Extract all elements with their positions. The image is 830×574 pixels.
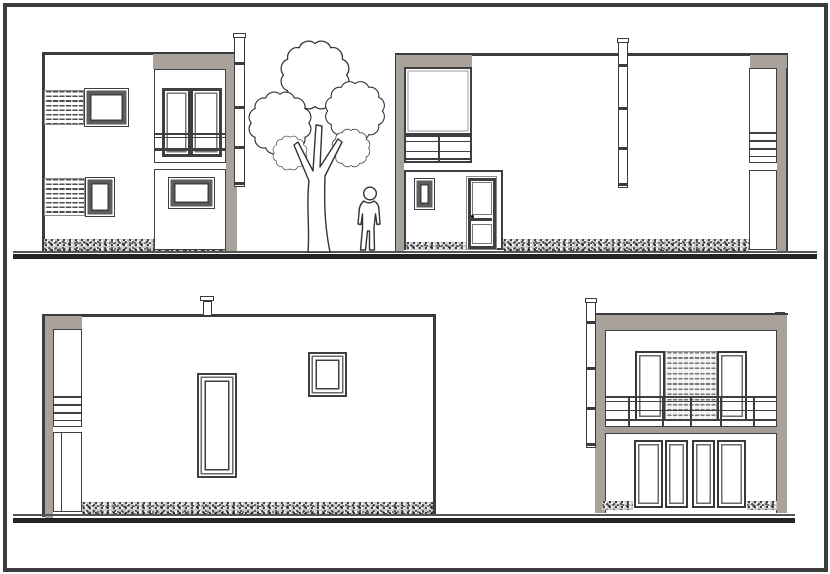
- balcony-casement-right: [190, 88, 222, 157]
- entry-door: [466, 176, 497, 250]
- parapet-band: [595, 315, 787, 331]
- roof-chimney: [203, 301, 212, 316]
- chimney-band: [234, 182, 246, 185]
- glazing-rail-line: [750, 148, 776, 150]
- ground-line-top: [13, 251, 817, 253]
- railing-post: [628, 396, 630, 426]
- drawing-sheet: [0, 0, 830, 574]
- door-glass-panel: [472, 182, 492, 215]
- corner-glazing-upper: [53, 329, 82, 397]
- chimney-band: [618, 147, 629, 150]
- parapet-band: [45, 316, 82, 329]
- door-mid-rail: [471, 218, 492, 222]
- door-panel: [634, 440, 663, 508]
- balcony-floor-band: [605, 426, 777, 434]
- door-panel: [665, 440, 688, 508]
- roof-edge: [42, 314, 436, 317]
- balcony-casement-left: [162, 88, 191, 157]
- person-figure: [350, 186, 390, 252]
- railing-post: [720, 396, 722, 426]
- chimney-band: [586, 407, 597, 410]
- wall-pier-right: [777, 55, 786, 252]
- louver-strip-lower: [44, 178, 85, 216]
- door-frame: [468, 178, 496, 249]
- parapet-band-right: [750, 55, 787, 68]
- wall-pier-left: [396, 55, 404, 252]
- wall-edge-right: [433, 314, 436, 516]
- window-large: [404, 67, 472, 135]
- railing-post: [662, 396, 664, 426]
- louver-strip-upper: [44, 90, 84, 125]
- wall-pier-right: [777, 315, 787, 514]
- corner-glazing-rail: [53, 397, 82, 427]
- balustrade: [404, 135, 472, 163]
- chimney-band: [234, 106, 246, 109]
- glazing-rail-line: [54, 404, 81, 406]
- corner-glazing-lower: [53, 432, 82, 512]
- railing-line: [154, 137, 226, 139]
- person-head: [364, 187, 377, 200]
- corner-glazing-lower: [749, 170, 777, 250]
- glazing-rail-line: [750, 156, 776, 158]
- wall-pier: [45, 316, 53, 522]
- ground-line-top-thick: [13, 254, 817, 259]
- railing-post: [753, 396, 755, 426]
- chimney-band: [618, 107, 629, 110]
- door-panel: [692, 440, 715, 508]
- wall-edge-right: [786, 53, 788, 252]
- wall-edge-left: [42, 52, 45, 252]
- railing-post: [690, 396, 692, 426]
- door-panel: [717, 440, 746, 508]
- chimney-band: [234, 62, 246, 65]
- door-handle: [471, 215, 474, 218]
- chimney-band: [618, 64, 629, 67]
- wing-window: [414, 178, 435, 210]
- glazing-rail-line: [54, 420, 81, 422]
- parapet-band-left: [396, 55, 472, 67]
- window-lower-left: [85, 177, 115, 217]
- window-upper-left: [84, 88, 129, 127]
- chimney-cap: [233, 33, 247, 39]
- balustrade-post: [438, 137, 440, 161]
- chimney-band: [586, 443, 597, 446]
- railing-line: [154, 133, 226, 135]
- corner-glazing-rail: [749, 133, 777, 163]
- chimney-band: [234, 146, 246, 149]
- door-lower-panel: [472, 224, 492, 245]
- chimney-cap: [585, 298, 598, 304]
- chimney: [618, 38, 628, 188]
- parapet-band: [153, 54, 237, 69]
- person-body: [358, 201, 380, 250]
- chimney-cap: [617, 38, 630, 44]
- chimney-band: [618, 183, 629, 186]
- railing-line: [154, 148, 226, 151]
- ground-line-bottom: [13, 514, 795, 516]
- plinth-stipple-left: [602, 501, 633, 510]
- square-window: [308, 352, 347, 397]
- corner-glazing-upper: [749, 68, 777, 133]
- chimney-band: [586, 321, 597, 324]
- tall-window: [197, 373, 237, 478]
- chimney-band: [586, 367, 597, 370]
- glazing-rail-line: [750, 140, 776, 142]
- plinth-stipple-right: [747, 501, 777, 510]
- window-lower-right: [168, 177, 215, 209]
- chimney: [586, 298, 596, 448]
- ground-line-bottom-thick: [13, 518, 795, 523]
- glazing-mullion: [61, 433, 63, 511]
- wall-pier-left: [595, 315, 605, 514]
- glazing-rail-line: [54, 412, 81, 414]
- chimney: [234, 33, 245, 187]
- wing-plinth-stipple: [406, 242, 466, 250]
